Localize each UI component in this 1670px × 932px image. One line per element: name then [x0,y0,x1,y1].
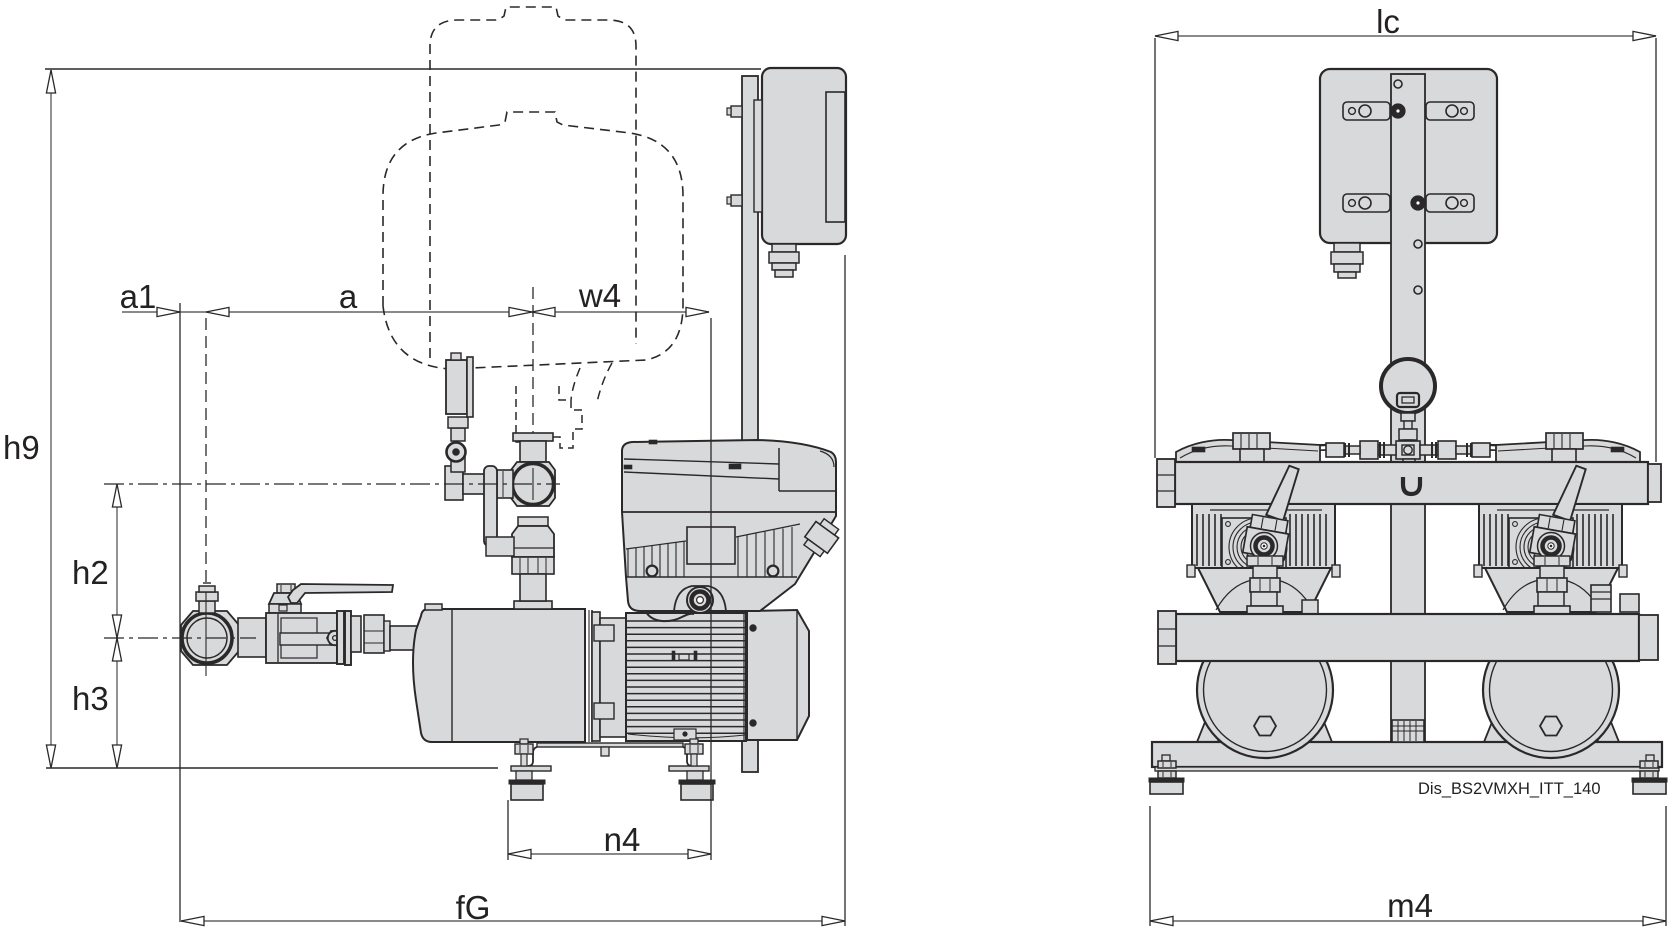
svg-text:a1: a1 [120,278,157,315]
svg-text:w4: w4 [578,277,621,314]
svg-text:h2: h2 [72,554,109,591]
svg-text:h3: h3 [72,680,109,717]
svg-text:h9: h9 [3,429,40,466]
svg-text:m4: m4 [1387,887,1433,924]
svg-text:fG: fG [456,889,491,926]
svg-text:a: a [339,278,358,315]
svg-text:Dis_BS2VMXH_ITT_140: Dis_BS2VMXH_ITT_140 [1418,780,1601,798]
svg-text:n4: n4 [604,821,641,858]
svg-text:lc: lc [1376,3,1400,40]
